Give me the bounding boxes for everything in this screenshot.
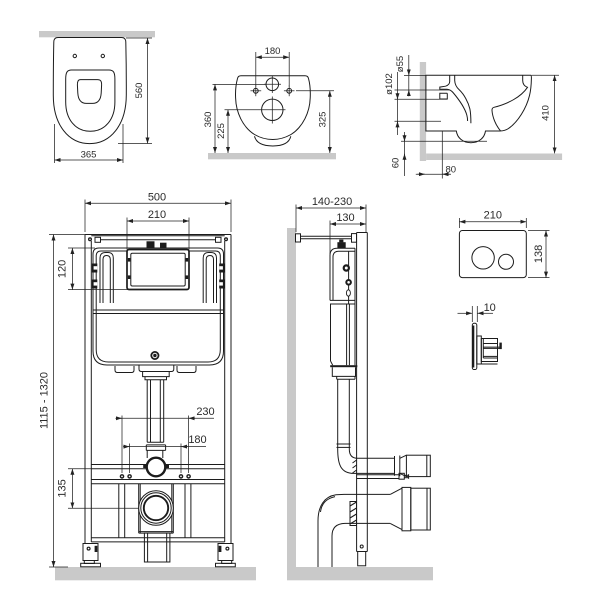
svg-text:130: 130: [336, 212, 354, 224]
svg-text:60: 60: [390, 158, 401, 169]
svg-text:10: 10: [484, 302, 496, 314]
svg-text:210: 210: [484, 210, 502, 222]
svg-text:1115 - 1320: 1115 - 1320: [39, 372, 51, 429]
svg-text:210: 210: [148, 209, 166, 221]
svg-text:500: 500: [148, 192, 166, 204]
svg-text:410: 410: [541, 105, 552, 121]
svg-text:225: 225: [216, 123, 227, 139]
svg-text:140-230: 140-230: [312, 196, 352, 208]
svg-text:180: 180: [188, 434, 206, 446]
svg-text:230: 230: [196, 406, 214, 418]
svg-text:80: 80: [446, 164, 457, 175]
svg-text:325: 325: [318, 112, 329, 128]
svg-text:180: 180: [265, 46, 281, 57]
svg-text:360: 360: [203, 112, 214, 128]
svg-text:ø55: ø55: [395, 56, 406, 72]
svg-text:138: 138: [533, 245, 545, 263]
svg-text:365: 365: [81, 150, 97, 161]
svg-text:ø102: ø102: [384, 73, 395, 95]
svg-text:135: 135: [57, 479, 69, 497]
svg-text:120: 120: [57, 260, 69, 278]
svg-text:560: 560: [134, 83, 145, 99]
